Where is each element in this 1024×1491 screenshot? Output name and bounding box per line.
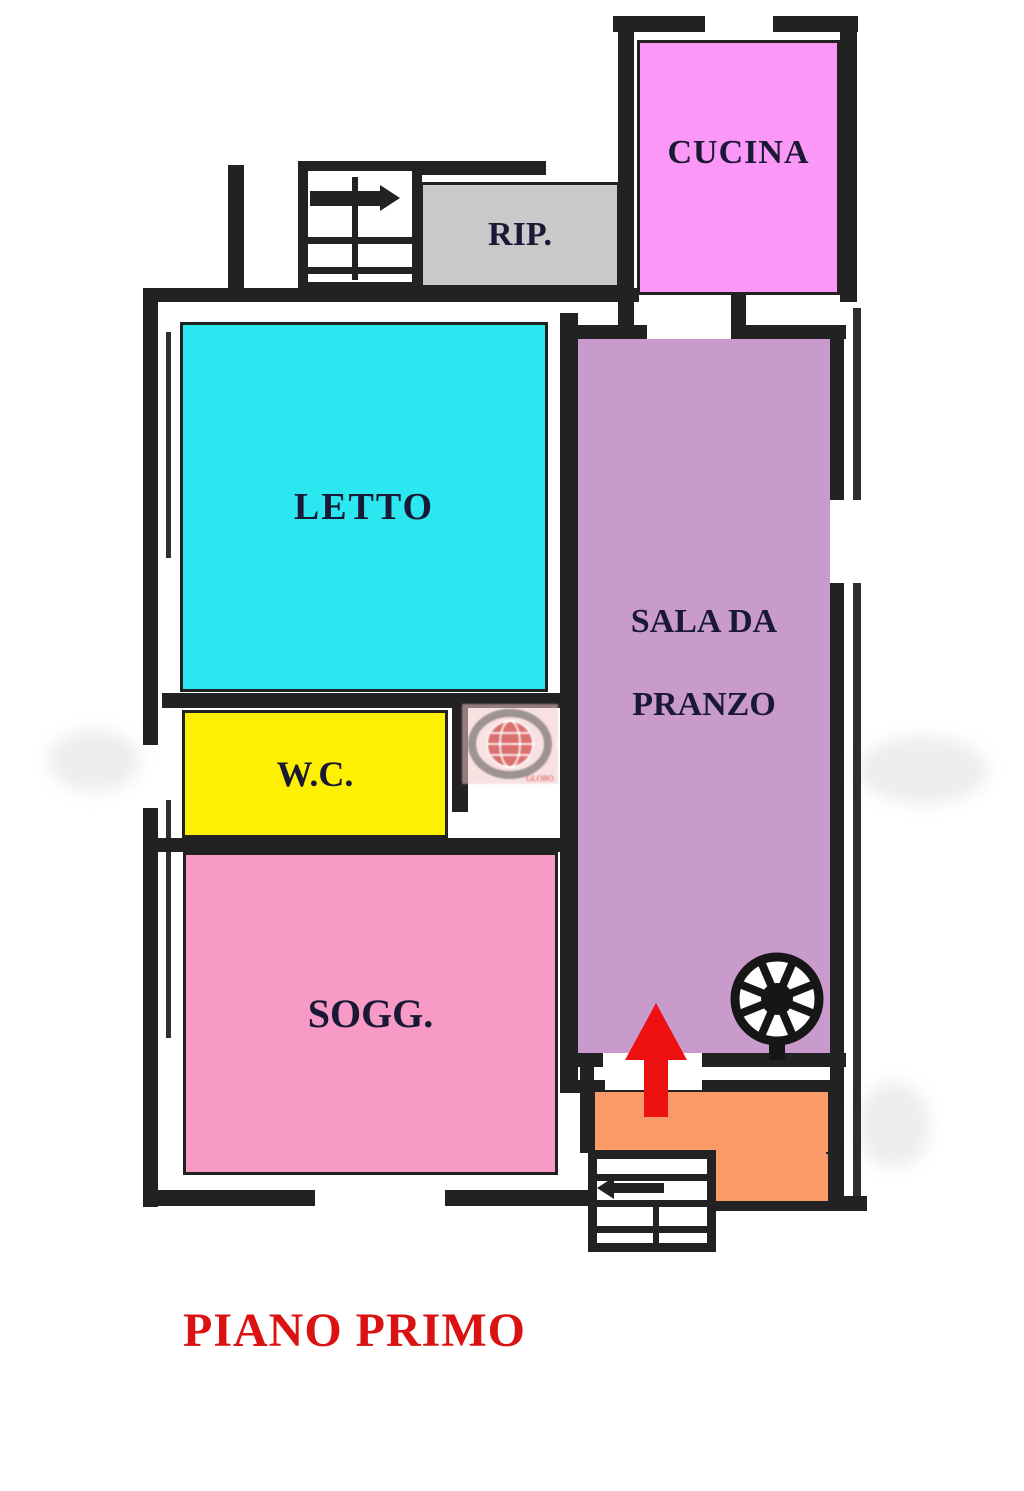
stair-tread — [597, 1200, 707, 1207]
fan-wheel-icon — [728, 952, 826, 1060]
wall-segment — [143, 1190, 315, 1206]
background-smudge — [48, 730, 140, 792]
wall-segment — [618, 16, 634, 338]
room-label-soggiorno: SOGG. — [308, 990, 434, 1037]
wall-segment — [733, 325, 846, 339]
staircase-top — [298, 161, 422, 292]
stair-arrow-head-icon — [597, 1177, 614, 1199]
background-smudge — [858, 1082, 930, 1168]
room-letto: LETTO — [180, 322, 548, 692]
room-ingresso-patch — [712, 1148, 826, 1158]
staircase-bottom — [588, 1150, 716, 1252]
window-line — [166, 332, 171, 558]
room-sala-da-pranzo: SALA DA PRANZO — [578, 339, 830, 1053]
window-line — [166, 800, 171, 1038]
wall-segment — [830, 339, 844, 500]
room-label-letto: LETTO — [294, 485, 434, 529]
window-line — [853, 583, 861, 1210]
room-ripostiglio: RIP. — [420, 182, 620, 288]
wall-segment — [143, 808, 158, 1207]
stair-tread — [308, 237, 412, 244]
floor-title: PIANO PRIMO — [183, 1303, 526, 1358]
room-label-wc: W.C. — [277, 753, 354, 795]
wall-segment — [143, 302, 158, 745]
stair-tread — [308, 267, 412, 274]
floor-plan: CUCINA RIP. LETTO SALA DA PRANZO W.C. SO… — [0, 0, 1024, 1491]
stair-arrow-bar — [609, 1183, 664, 1193]
background-smudge — [858, 736, 988, 804]
room-wc: W.C. — [182, 710, 448, 838]
wall-segment — [560, 313, 578, 1093]
room-ingresso — [708, 1152, 830, 1203]
watermark-text: GLOBO — [526, 774, 554, 783]
room-label-sala: SALA DA PRANZO — [578, 601, 830, 725]
watermark-globe-logo: GLOBO — [462, 704, 558, 784]
stair-arrow-bar — [310, 191, 382, 206]
wall-segment — [830, 583, 844, 1210]
room-soggiorno: SOGG. — [183, 852, 558, 1175]
window-line — [853, 308, 861, 500]
wall-segment — [228, 165, 244, 292]
room-label-ripostiglio: RIP. — [488, 216, 552, 254]
room-label-cucina: CUCINA — [668, 134, 810, 172]
stair-tread — [597, 1226, 707, 1233]
wall-segment — [580, 1063, 594, 1153]
wall-segment — [145, 838, 578, 852]
wall-segment — [840, 16, 857, 302]
wall-segment — [445, 1190, 593, 1206]
room-cucina: CUCINA — [637, 40, 840, 295]
stair-arrow-head-icon — [380, 185, 400, 211]
stair-centerline — [352, 177, 358, 280]
stair-centerline — [653, 1200, 659, 1243]
up-arrow-icon — [622, 1000, 688, 1120]
